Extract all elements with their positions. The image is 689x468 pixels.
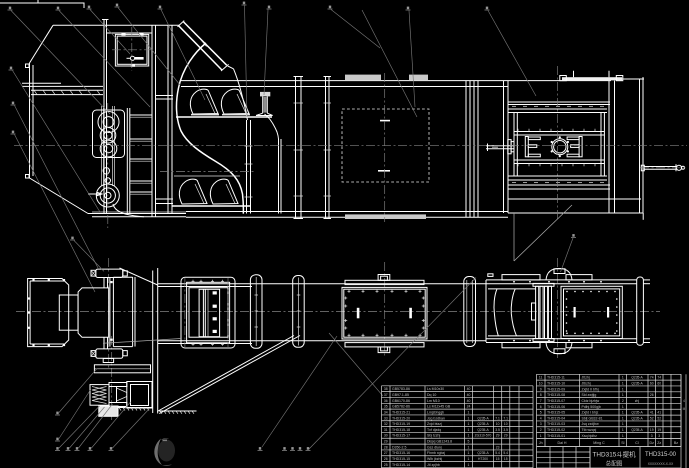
svg-text:1: 1 bbox=[468, 457, 470, 461]
svg-text:XXXXXXXX-X-XX: XXXXXXXX-X-XX bbox=[648, 462, 674, 466]
svg-text:Gsz dlunj: Gsz dlunj bbox=[427, 445, 442, 449]
svg-text:29: 29 bbox=[504, 434, 508, 438]
svg-text:THD315-07: THD315-07 bbox=[547, 399, 565, 403]
svg-text:THD315-04: THD315-04 bbox=[547, 416, 565, 420]
svg-text:THD315-19: THD315-19 bbox=[392, 422, 410, 426]
svg-text:1: 1 bbox=[468, 416, 470, 420]
svg-text:10: 10 bbox=[539, 381, 543, 385]
svg-text:THD315-05: THD315-05 bbox=[547, 411, 565, 415]
svg-text:Sld zwjtjg: Sld zwjtjg bbox=[582, 393, 597, 397]
svg-text:Txf djzdq: Txf djzdq bbox=[427, 428, 441, 432]
svg-text:Lmjzbhggb: Lmjzbhggb bbox=[427, 410, 444, 414]
svg-text:1: 1 bbox=[622, 405, 624, 409]
svg-text:7.1: 7.1 bbox=[503, 416, 508, 420]
svg-text:Ls M10x30: Ls M10x30 bbox=[427, 387, 444, 391]
svg-text:1: 1 bbox=[468, 422, 470, 426]
svg-text:1: 1 bbox=[468, 445, 470, 449]
svg-text:6: 6 bbox=[540, 405, 542, 409]
svg-text:5: 5 bbox=[468, 440, 470, 444]
svg-text:Sbj tzzhj: Sbj tzzhj bbox=[427, 434, 440, 438]
svg-text:1: 1 bbox=[468, 428, 470, 432]
svg-text:27: 27 bbox=[384, 451, 388, 455]
svg-text:THD315-09: THD315-09 bbox=[547, 387, 565, 391]
svg-text:THD315-08: THD315-08 bbox=[547, 393, 565, 397]
svg-text:3: 3 bbox=[651, 434, 653, 438]
svg-text:4: 4 bbox=[683, 399, 685, 403]
svg-text:29: 29 bbox=[384, 440, 388, 444]
svg-text:52: 52 bbox=[657, 416, 661, 420]
svg-text:23: 23 bbox=[496, 445, 500, 449]
svg-text:Jcg bzdban: Jcg bzdban bbox=[427, 416, 445, 420]
svg-text:3.5: 3.5 bbox=[495, 428, 500, 432]
svg-text:1: 1 bbox=[622, 428, 624, 432]
svg-text:2: 2 bbox=[540, 428, 542, 432]
svg-text:THD315-16: THD315-16 bbox=[392, 451, 410, 455]
svg-text:THD315-20: THD315-20 bbox=[392, 416, 410, 420]
svg-text:1: 1 bbox=[622, 422, 624, 426]
svg-text:11: 11 bbox=[539, 376, 543, 380]
svg-text:37: 37 bbox=[384, 393, 388, 397]
svg-text:1: 1 bbox=[622, 376, 624, 380]
svg-text:Jtl zpjhb: Jtl zpjhb bbox=[427, 463, 440, 467]
svg-text:Dlsjxj GB1243.8: Dlsjxj GB1243.8 bbox=[427, 440, 452, 444]
svg-text:1: 1 bbox=[622, 393, 624, 397]
svg-text:15: 15 bbox=[504, 457, 508, 461]
svg-text:Wlb jbzhtj: Wlb jbzhtj bbox=[427, 457, 442, 461]
svg-text:Q235-A: Q235-A bbox=[477, 428, 489, 432]
svg-text:THD315-11: THD315-11 bbox=[547, 376, 565, 380]
svg-text:60: 60 bbox=[657, 381, 661, 385]
svg-text:Q235-A: Q235-A bbox=[631, 416, 643, 420]
svg-text:THD315斗提机: THD315斗提机 bbox=[593, 450, 637, 459]
svg-text:THD315-18: THD315-18 bbox=[392, 428, 410, 432]
svg-text:Q235-A: Q235-A bbox=[631, 411, 643, 415]
svg-text:74: 74 bbox=[657, 376, 661, 380]
svg-text:38: 38 bbox=[384, 387, 388, 391]
svg-text:24: 24 bbox=[467, 405, 471, 409]
svg-text:7: 7 bbox=[540, 399, 542, 403]
svg-text:1: 1 bbox=[622, 416, 624, 420]
svg-text:36: 36 bbox=[384, 399, 388, 403]
svg-text:5.4: 5.4 bbox=[503, 451, 508, 455]
svg-text:40: 40 bbox=[467, 393, 471, 397]
svg-text:HT200: HT200 bbox=[478, 457, 488, 461]
svg-text:THD315-15: THD315-15 bbox=[392, 457, 410, 461]
svg-text:3: 3 bbox=[658, 434, 660, 438]
svg-text:15: 15 bbox=[496, 457, 500, 461]
svg-text:Dai H: Dai H bbox=[558, 441, 567, 445]
svg-text:1: 1 bbox=[622, 411, 624, 415]
svg-text:25: 25 bbox=[384, 463, 388, 467]
svg-text:32: 32 bbox=[384, 422, 388, 426]
svg-text:2: 2 bbox=[622, 399, 624, 403]
svg-text:Zxjd btzzj: Zxjd btzzj bbox=[427, 422, 442, 426]
svg-text:52: 52 bbox=[650, 416, 654, 420]
svg-text:1: 1 bbox=[622, 387, 624, 391]
svg-text:1: 1 bbox=[468, 410, 470, 414]
svg-text:THD315-02: THD315-02 bbox=[547, 428, 565, 432]
svg-text:40: 40 bbox=[467, 387, 471, 391]
svg-text:1: 1 bbox=[622, 381, 624, 385]
svg-text:Q235-A: Q235-A bbox=[477, 422, 489, 426]
svg-text:Zz: Zz bbox=[657, 441, 661, 445]
svg-text:1: 1 bbox=[540, 434, 542, 438]
svg-text:3.5: 3.5 bbox=[503, 428, 508, 432]
svg-text:Ttb wzqxj: Ttb wzqxj bbox=[582, 428, 597, 432]
svg-text:29: 29 bbox=[496, 434, 500, 438]
svg-text:41: 41 bbox=[657, 411, 661, 415]
svg-text:33: 33 bbox=[384, 416, 388, 420]
svg-text:GB5783-86: GB5783-86 bbox=[392, 387, 410, 391]
svg-text:ZG310-570: ZG310-570 bbox=[475, 434, 492, 438]
svg-text:Pdlhj 500gjb: Pdlhj 500gjb bbox=[582, 405, 601, 409]
svg-text:GB97.1-85: GB97.1-85 bbox=[392, 393, 409, 397]
svg-text:THD315-21: THD315-21 bbox=[392, 410, 410, 414]
svg-text:74: 74 bbox=[650, 376, 654, 380]
svg-text:Q235-A: Q235-A bbox=[477, 416, 489, 420]
svg-text:10: 10 bbox=[496, 422, 500, 426]
svg-text:41: 41 bbox=[650, 411, 654, 415]
svg-text:7.1: 7.1 bbox=[495, 416, 500, 420]
svg-text:Jsq zzdjbw: Jsq zzdjbw bbox=[582, 422, 600, 426]
svg-text:19: 19 bbox=[650, 428, 654, 432]
svg-text:THD315-03: THD315-03 bbox=[547, 422, 565, 426]
svg-text:30: 30 bbox=[384, 434, 388, 438]
svg-text:9: 9 bbox=[540, 387, 542, 391]
svg-text:Jttzhj: Jttzhj bbox=[582, 376, 590, 380]
svg-text:Jh: Jh bbox=[539, 441, 543, 445]
svg-text:34: 34 bbox=[384, 410, 388, 414]
svg-text:Fhmb xgbzj: Fhmb xgbzj bbox=[427, 451, 445, 455]
svg-text:5: 5 bbox=[540, 411, 542, 415]
svg-text:26: 26 bbox=[384, 457, 388, 461]
svg-text:Sbjt GB32-81: Sbjt GB32-81 bbox=[582, 416, 603, 420]
svg-text:31: 31 bbox=[384, 428, 388, 432]
svg-text:Jtbzhj: Jtbzhj bbox=[582, 381, 591, 385]
svg-text:3: 3 bbox=[540, 422, 542, 426]
svg-text:10: 10 bbox=[504, 422, 508, 426]
svg-text:Ming C: Ming C bbox=[593, 441, 605, 445]
svg-text:5.4: 5.4 bbox=[495, 451, 500, 455]
svg-text:19: 19 bbox=[657, 428, 661, 432]
svg-text:Dq 10: Dq 10 bbox=[427, 393, 436, 397]
svg-text:THD315-17: THD315-17 bbox=[392, 434, 410, 438]
svg-text:8: 8 bbox=[540, 393, 542, 397]
svg-text:35: 35 bbox=[384, 405, 388, 409]
svg-text:1: 1 bbox=[468, 434, 470, 438]
svg-text:28: 28 bbox=[384, 445, 388, 449]
svg-text:THD315-06: THD315-06 bbox=[547, 405, 565, 409]
svg-text:zhj: zhj bbox=[635, 399, 639, 403]
svg-text:GB6170-86: GB6170-86 bbox=[392, 399, 410, 403]
svg-text:Bz: Bz bbox=[674, 441, 678, 445]
svg-text:D350-2.5: D350-2.5 bbox=[392, 445, 406, 449]
svg-text:4: 4 bbox=[540, 416, 542, 420]
svg-text:40: 40 bbox=[467, 399, 471, 403]
svg-text:THD315-00: THD315-00 bbox=[645, 452, 677, 458]
svg-text:Q235-A: Q235-A bbox=[631, 428, 643, 432]
svg-text:THD315-01: THD315-01 bbox=[547, 434, 565, 438]
svg-text:THD315-10: THD315-10 bbox=[547, 381, 565, 385]
svg-text:1: 1 bbox=[622, 434, 624, 438]
svg-text:26: 26 bbox=[650, 393, 654, 397]
svg-text:Dz: Dz bbox=[649, 441, 654, 445]
svg-text:Q235-A: Q235-A bbox=[631, 381, 643, 385]
svg-text:总配图: 总配图 bbox=[606, 460, 623, 468]
svg-text:THD315-14: THD315-14 bbox=[392, 463, 410, 467]
svg-text:Ls M12x45 GB: Ls M12x45 GB bbox=[427, 405, 451, 409]
svg-text:Zxjtd I bhjz: Zxjtd I bhjz bbox=[582, 411, 599, 415]
svg-text:Sl: Sl bbox=[621, 441, 624, 445]
svg-text:Q235-A: Q235-A bbox=[477, 451, 489, 455]
svg-text:60: 60 bbox=[650, 381, 654, 385]
svg-text:Lm M10: Lm M10 bbox=[427, 399, 440, 403]
svg-text:1: 1 bbox=[468, 463, 470, 467]
svg-text:GB5782-86: GB5782-86 bbox=[392, 405, 410, 409]
svg-text:Cktz bjzhjw: Cktz bjzhjw bbox=[582, 399, 600, 403]
svg-text:Q235-A: Q235-A bbox=[631, 376, 643, 380]
svg-text:Xsq bjdhz: Xsq bjdhz bbox=[582, 434, 598, 438]
svg-text:Cl: Cl bbox=[635, 441, 639, 445]
svg-text:M: M bbox=[683, 407, 686, 411]
svg-text:Zxjtd II bfhj: Zxjtd II bfhj bbox=[582, 387, 599, 391]
svg-text:1: 1 bbox=[468, 451, 470, 455]
